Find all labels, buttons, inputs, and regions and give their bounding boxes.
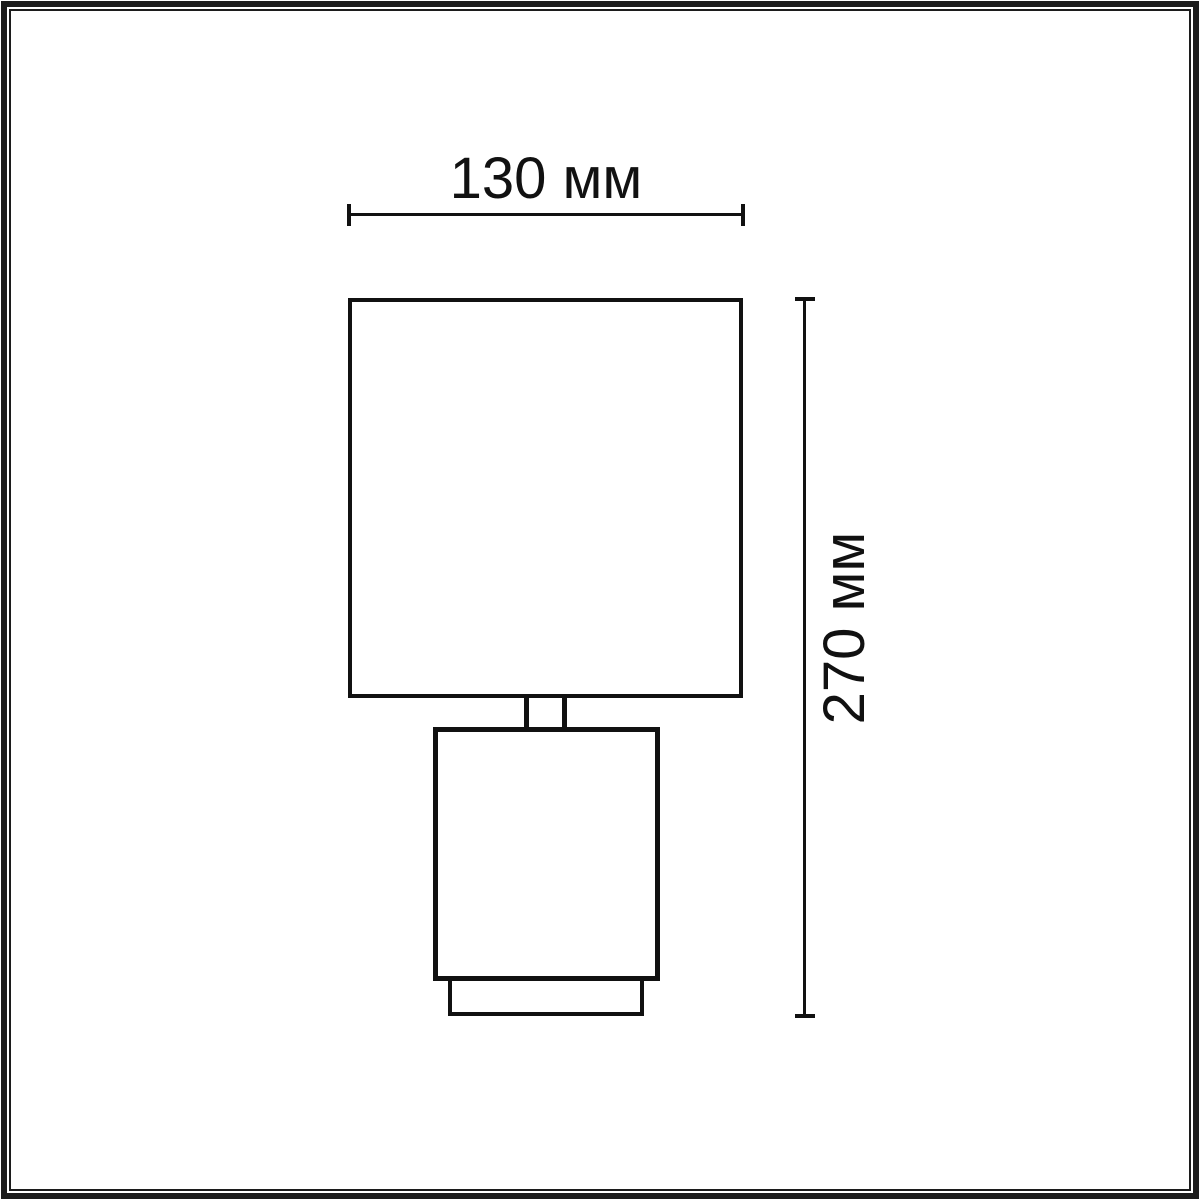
width-dimension-label: 130 мм	[346, 150, 746, 208]
width-dimension-line	[349, 213, 743, 216]
lamp-base-outline	[448, 981, 644, 1016]
lamp-neck-outline	[524, 694, 567, 730]
height-dimension-label: 270 мм	[816, 428, 874, 828]
height-dimension-tick-bottom	[795, 1014, 815, 1018]
lamp-body-outline	[433, 727, 660, 981]
dimension-drawing-canvas: 130 мм 270 мм	[0, 0, 1200, 1200]
height-dimension-line	[803, 299, 806, 1016]
lamp-shade-outline	[348, 298, 743, 698]
height-dimension-tick-top	[795, 297, 815, 301]
